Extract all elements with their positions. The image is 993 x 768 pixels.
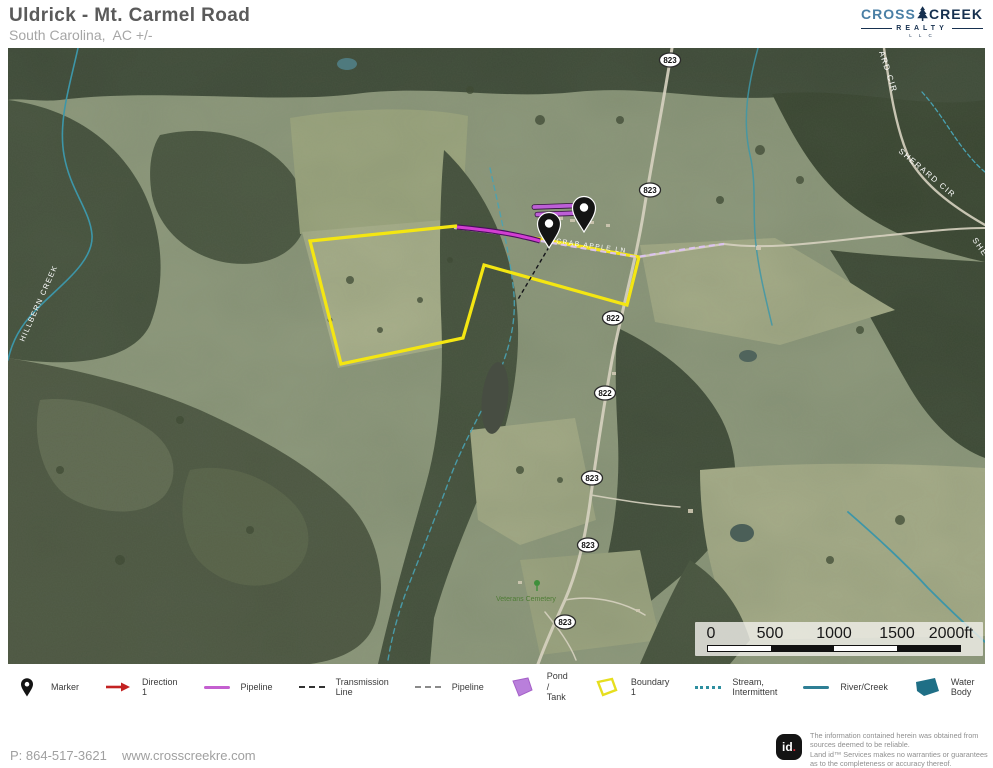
legend-item-pipeline-purple: Pipeline — [202, 682, 273, 692]
gray-dashed-line-icon — [413, 686, 443, 688]
aerial-map: 823 823 822 822 823 823 823 CRAB APPLE L… — [8, 48, 985, 664]
route-shield: 822 — [595, 386, 616, 400]
legend-item-stream: Stream, Intermittent — [693, 677, 777, 698]
yellow-polygon-icon — [592, 677, 622, 697]
route-shield: 823 — [660, 53, 681, 67]
legend-item-pipeline-gray: Pipeline — [413, 682, 484, 692]
black-dashed-line-icon — [297, 686, 327, 688]
svg-text:822: 822 — [606, 314, 620, 323]
svg-text:823: 823 — [581, 541, 595, 550]
scale-tick: 500 — [757, 625, 784, 643]
legend-item-direction: Direction 1 — [103, 677, 178, 698]
legend-item-transmission: Transmission Line — [297, 677, 389, 698]
page-title: Uldrick - Mt. Carmel Road — [9, 5, 250, 27]
scale-tick: 2000ft — [929, 625, 973, 643]
scale-bar: 0 500 1000 1500 2000ft — [695, 622, 983, 656]
scale-tick: 1500 — [879, 625, 915, 643]
teal-dashed-line-icon — [693, 686, 723, 689]
route-shield: 823 — [582, 471, 603, 485]
evergreen-tree-icon — [917, 4, 928, 24]
small-pond-3 — [337, 58, 357, 70]
purple-line-icon — [202, 686, 232, 689]
teal-line-icon — [801, 686, 831, 689]
red-arrow-icon — [103, 682, 133, 692]
logo-cross-text: CROSS — [861, 6, 916, 22]
cross-creek-realty-logo: CROSS CREEK REALTY L L C — [861, 4, 983, 38]
legend: Marker Direction 1 Pipeline Transmission… — [0, 664, 993, 710]
legend-item-pond-tank: Pond / Tank — [508, 671, 568, 702]
route-shield: 823 — [640, 183, 661, 197]
purple-polygon-icon — [508, 677, 538, 697]
legend-item-waterbody: Water Body — [912, 677, 975, 698]
svg-text:823: 823 — [558, 618, 572, 627]
logo-llc-text: L L C — [861, 33, 983, 38]
scale-tick: 0 — [707, 625, 716, 643]
land-id-logo: id. — [776, 734, 802, 760]
footer: P: 864-517-3621 www.crosscreekre.com id.… — [0, 710, 993, 768]
scale-bar-segments — [707, 645, 961, 652]
logo-realty-text: REALTY — [896, 25, 947, 32]
cemetery-poi-icon — [534, 580, 540, 586]
svg-text:822: 822 — [598, 389, 612, 398]
route-shield: 823 — [555, 615, 576, 629]
phone-number: P: 864-517-3621 — [10, 748, 107, 763]
teal-polygon-icon — [912, 677, 942, 697]
marker-pin-icon — [12, 678, 42, 697]
svg-text:823: 823 — [643, 186, 657, 195]
logo-creek-text: CREEK — [929, 6, 983, 22]
small-pond-2 — [730, 524, 754, 542]
disclaimer-text: The information contained herein was obt… — [810, 731, 992, 768]
scale-tick: 1000 — [816, 625, 852, 643]
terrain — [8, 48, 985, 664]
small-pond-1 — [739, 350, 757, 362]
route-shield: 823 — [578, 538, 599, 552]
legend-item-marker: Marker — [12, 678, 79, 697]
website-url: www.crosscreekre.com — [122, 748, 256, 763]
svg-text:823: 823 — [585, 474, 599, 483]
poi-label-cemetery: Veterans Cemetery — [496, 596, 556, 603]
legend-item-boundary: Boundary 1 — [592, 677, 670, 698]
svg-text:823: 823 — [663, 56, 677, 65]
page-subtitle: South Carolina, AC +/- — [9, 27, 153, 43]
header: Uldrick - Mt. Carmel Road South Carolina… — [0, 0, 993, 48]
map-canvas: 823 823 822 822 823 823 823 CRAB APPLE L… — [8, 48, 985, 664]
map-flyer-page: Uldrick - Mt. Carmel Road South Carolina… — [0, 0, 993, 768]
legend-item-river: River/Creek — [801, 682, 888, 692]
route-shield: 822 — [603, 311, 624, 325]
